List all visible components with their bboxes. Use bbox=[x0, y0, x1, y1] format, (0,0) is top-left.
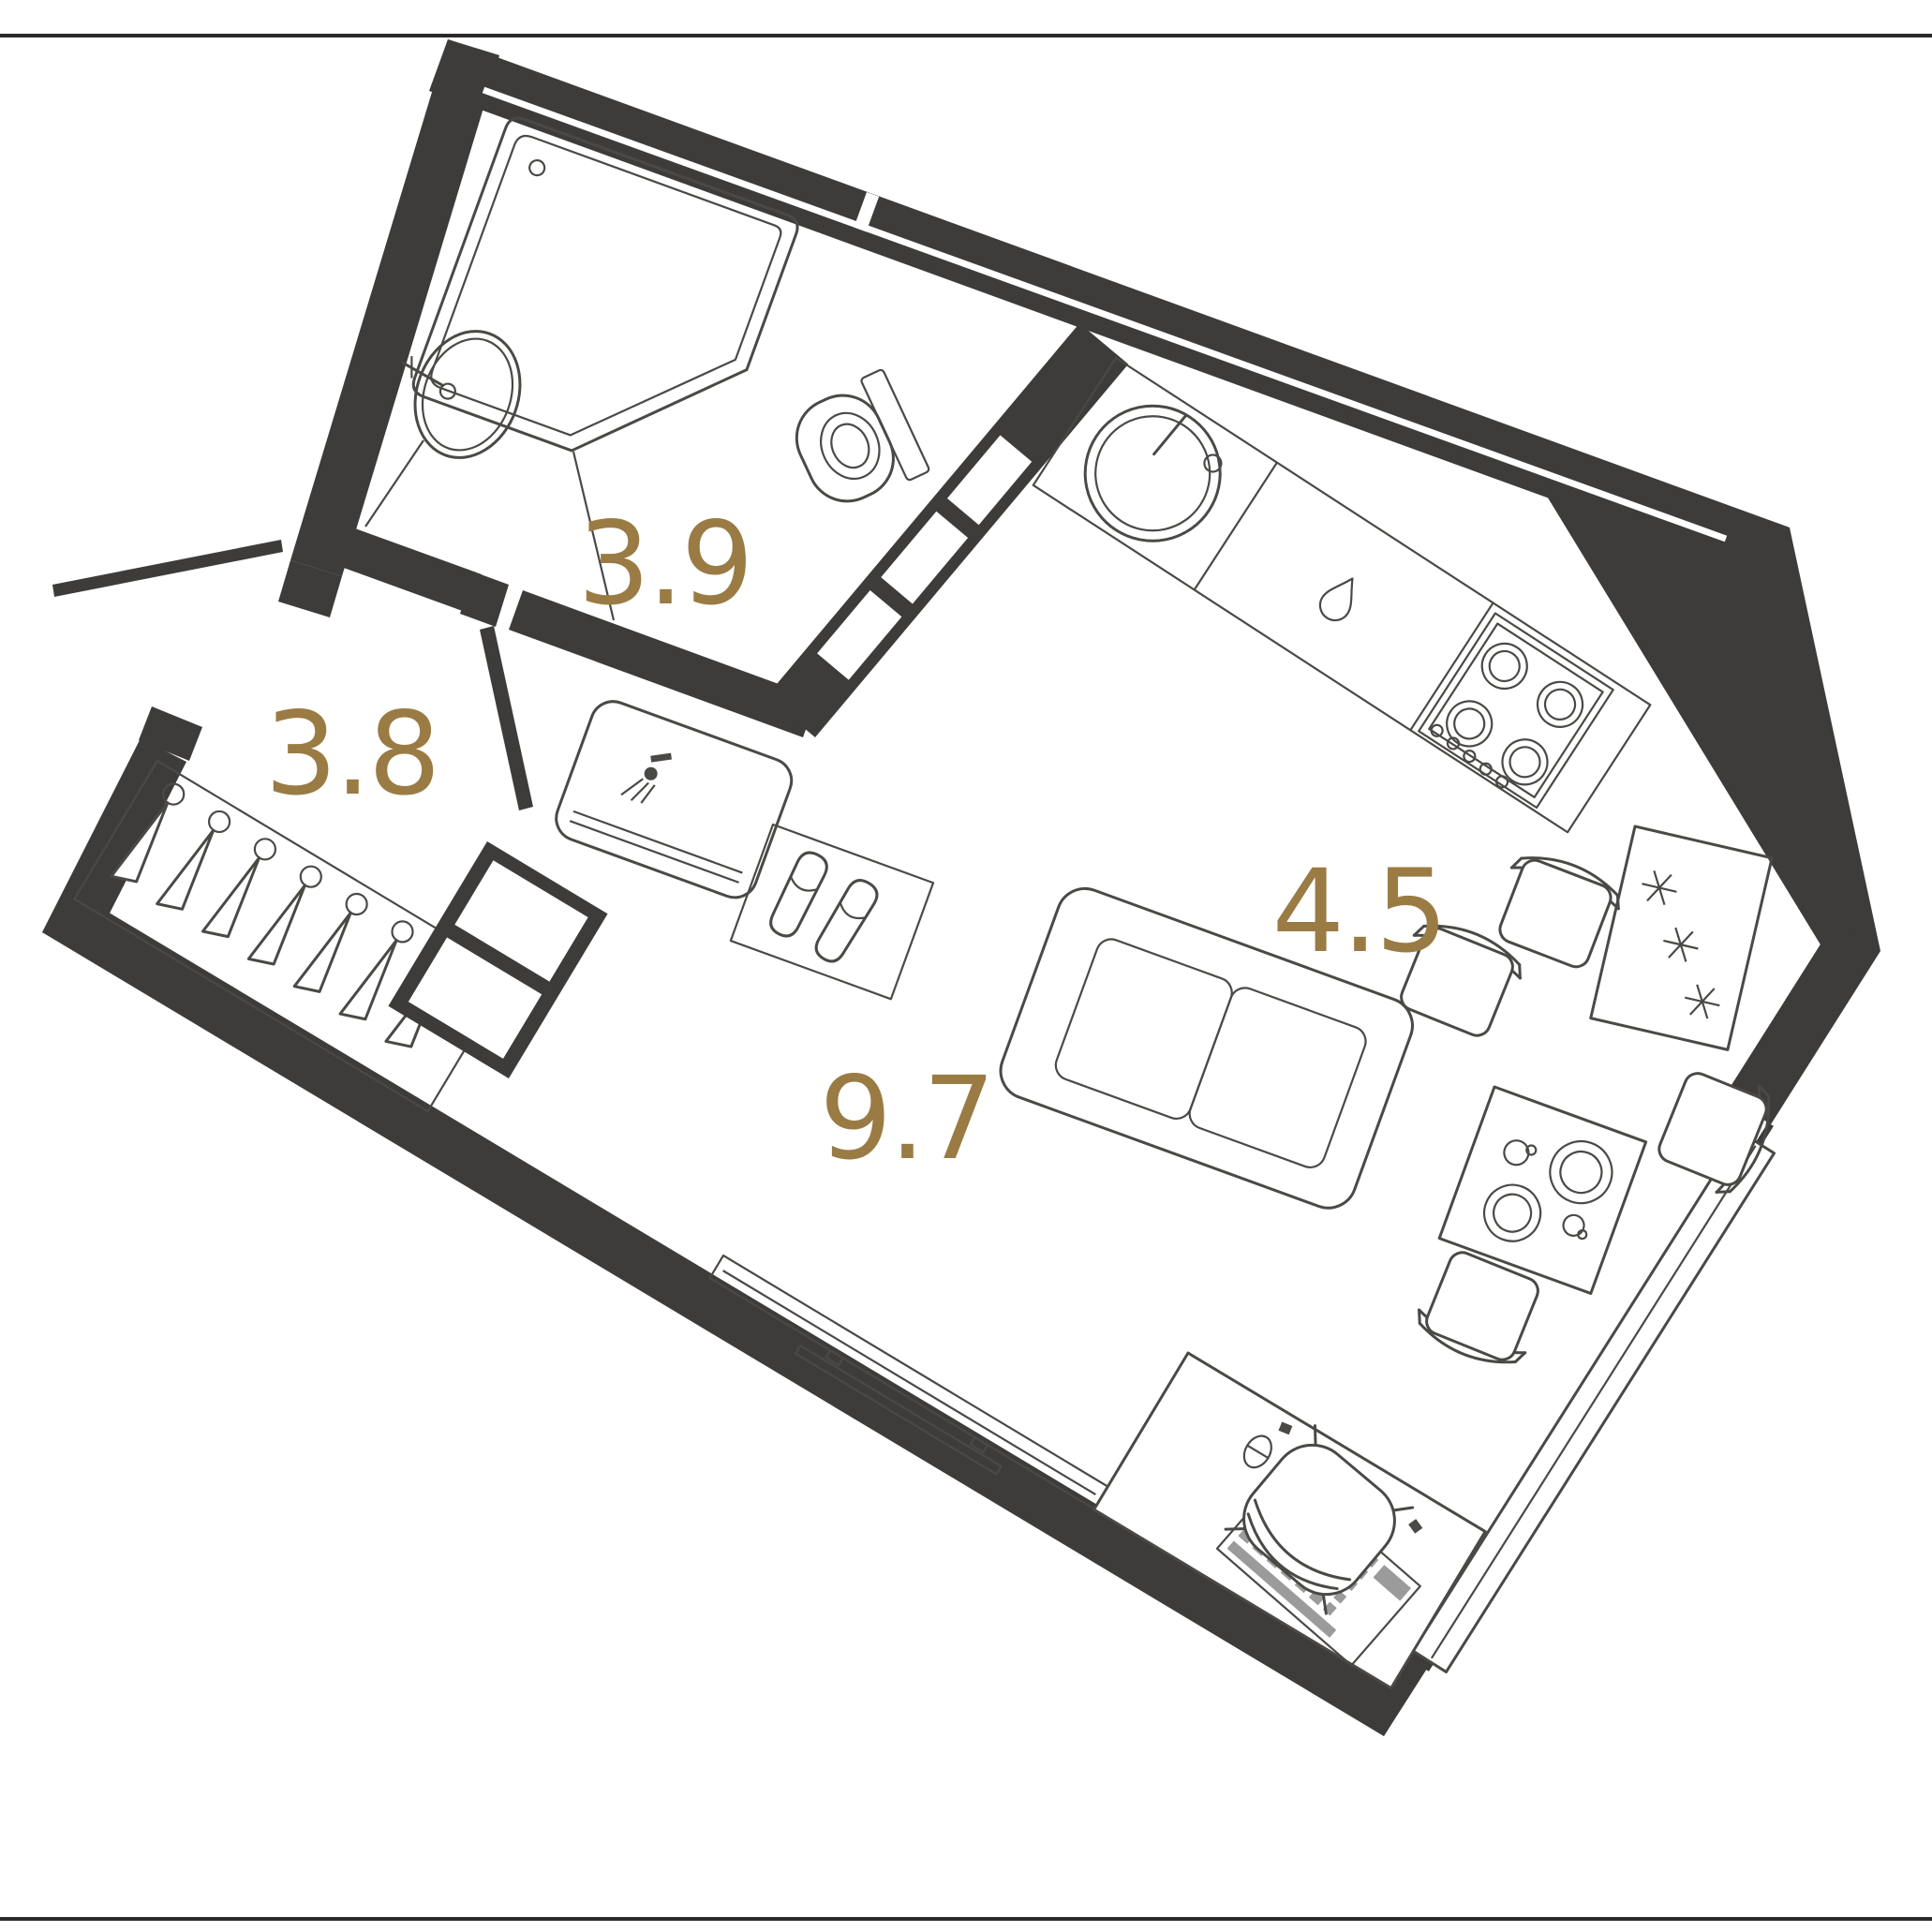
page-rule-top bbox=[0, 34, 1932, 37]
toilet bbox=[782, 369, 930, 518]
wall-bathroom-hallway bbox=[331, 525, 482, 613]
living-room-furniture bbox=[699, 845, 1782, 1689]
room-label-bathroom: 3.9 bbox=[577, 498, 751, 631]
shelf-niche-wall bbox=[766, 323, 1128, 737]
kitchen-counter bbox=[1033, 358, 1651, 832]
slippers-mat bbox=[731, 825, 933, 999]
room-label-kitchen: 4.5 bbox=[1271, 845, 1445, 978]
floor-plan-svg: 3.9 3.8 4.5 9.7 bbox=[0, 0, 1932, 1932]
floor-plan-page: 3.9 3.8 4.5 9.7 bbox=[0, 0, 1932, 1932]
vanity-sink bbox=[550, 695, 797, 904]
bathroom-door-leaf bbox=[480, 626, 533, 810]
seat-cushion bbox=[1185, 984, 1370, 1171]
room-label-living: 9.7 bbox=[819, 1052, 992, 1185]
closet-shelves bbox=[388, 841, 607, 1078]
entry-door-leaf bbox=[52, 540, 283, 597]
wall-bathroom-left bbox=[290, 39, 499, 576]
room-label-hallway: 3.8 bbox=[264, 688, 438, 821]
wall-slit bbox=[483, 90, 1726, 539]
stove bbox=[1418, 613, 1613, 810]
fridge bbox=[1591, 826, 1772, 1049]
shower-head-icon bbox=[620, 742, 674, 809]
seat-cushion bbox=[1051, 935, 1236, 1122]
page-rule-bottom bbox=[0, 1917, 1932, 1921]
wall-bottom bbox=[42, 888, 1410, 1736]
dishwasher-drop-icon bbox=[1315, 571, 1365, 626]
